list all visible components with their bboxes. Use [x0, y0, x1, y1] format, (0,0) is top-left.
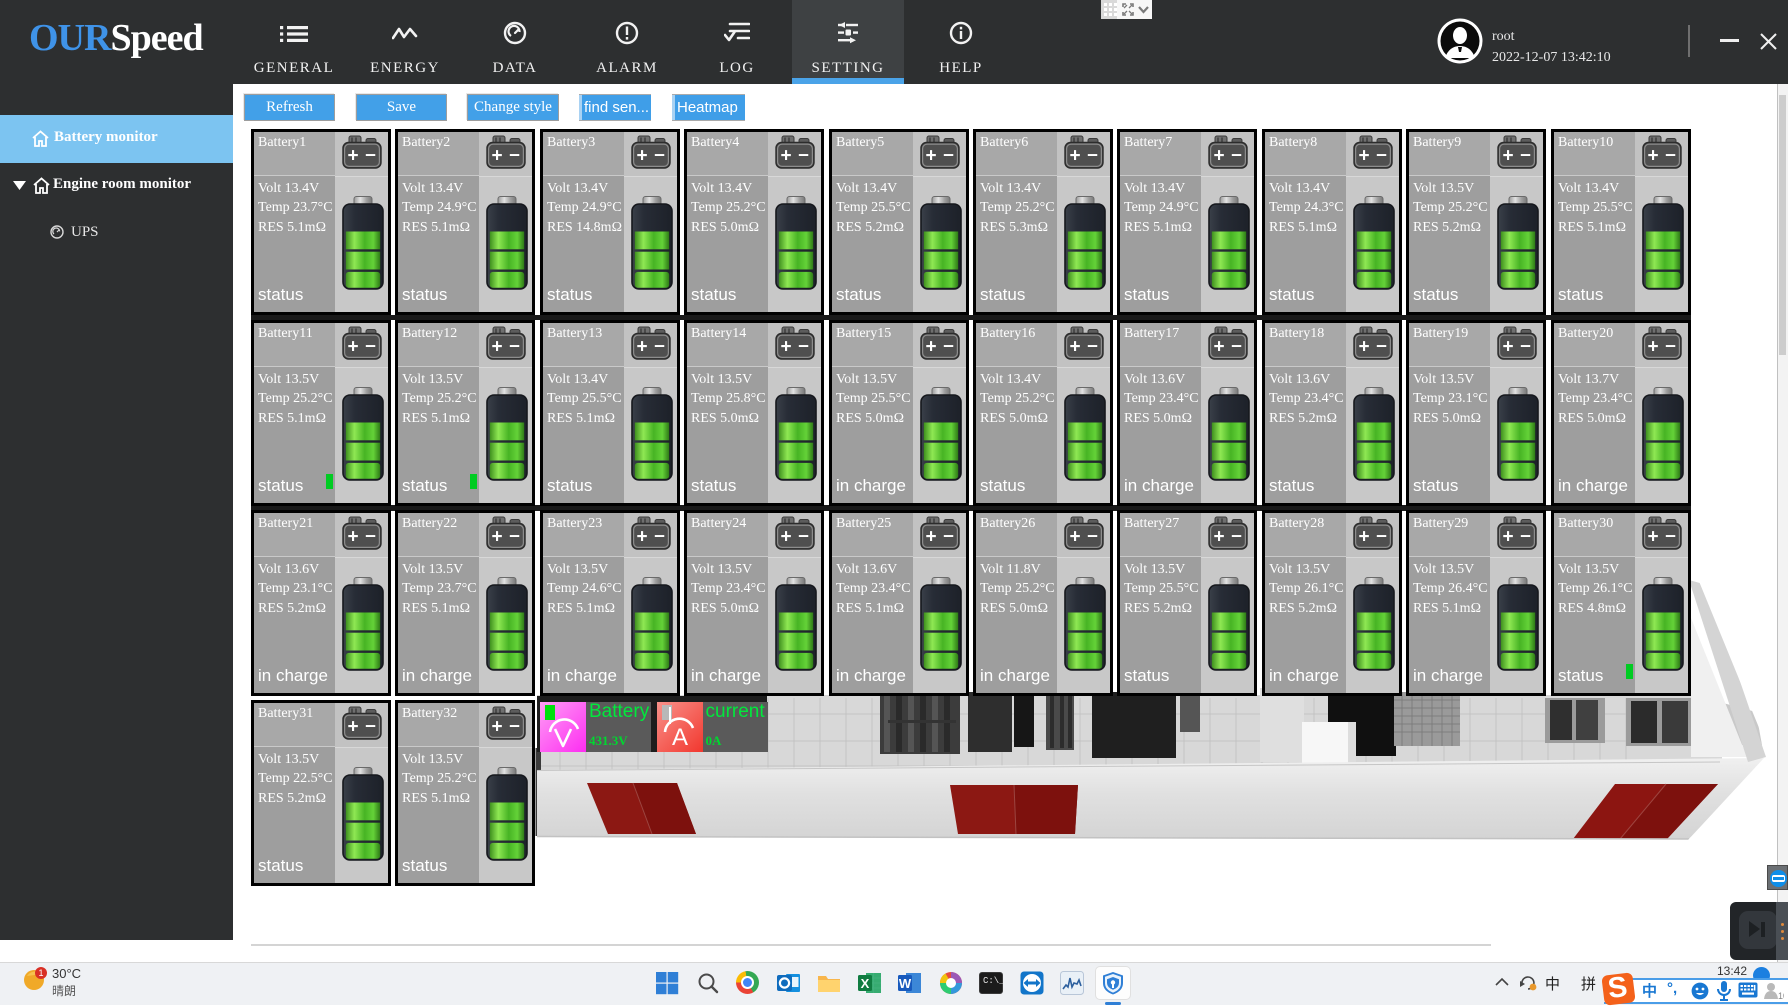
svg-text:+: + [925, 527, 936, 548]
svg-text:+: + [347, 717, 358, 738]
svg-text:–: – [1376, 145, 1387, 166]
svg-text:+: + [636, 527, 647, 548]
svg-text:W: W [899, 976, 912, 991]
svg-text:–: – [1520, 526, 1531, 547]
svg-text:+: + [925, 337, 936, 358]
svg-text:–: – [654, 526, 665, 547]
svg-text:–: – [1665, 145, 1676, 166]
svg-text:+: + [491, 717, 502, 738]
svg-text:+: + [1502, 146, 1513, 167]
svg-text:+: + [780, 527, 791, 548]
svg-text:+: + [1358, 146, 1369, 167]
svg-text:X: X [860, 976, 869, 991]
svg-text:–: – [509, 336, 520, 357]
svg-text:–: – [1665, 526, 1676, 547]
svg-text:–: – [798, 336, 809, 357]
svg-text:–: – [798, 526, 809, 547]
svg-text:+: + [1213, 337, 1224, 358]
svg-text:+: + [347, 337, 358, 358]
svg-text:10: 10 [1778, 991, 1784, 1001]
svg-text:–: – [365, 145, 376, 166]
svg-text:+: + [1213, 527, 1224, 548]
svg-text:–: – [654, 336, 665, 357]
svg-text:+: + [491, 337, 502, 358]
svg-text:–: – [509, 145, 520, 166]
svg-text:–: – [509, 716, 520, 737]
svg-text:–: – [654, 145, 665, 166]
svg-text:–: – [1520, 336, 1531, 357]
svg-text:1: 1 [38, 968, 43, 978]
svg-text:A: A [671, 724, 687, 751]
svg-text:–: – [943, 336, 954, 357]
svg-text:+: + [636, 146, 647, 167]
svg-text:+: + [1647, 337, 1658, 358]
svg-text:–: – [1231, 526, 1242, 547]
svg-text:–: – [365, 336, 376, 357]
svg-text:+: + [780, 337, 791, 358]
svg-text:+: + [1502, 337, 1513, 358]
svg-text:–: – [1087, 336, 1098, 357]
svg-text:–: – [1665, 336, 1676, 357]
svg-text:–: – [1376, 336, 1387, 357]
svg-text:–: – [1520, 145, 1531, 166]
svg-text:–: – [1087, 145, 1098, 166]
svg-text:–: – [509, 526, 520, 547]
svg-text:+: + [1358, 527, 1369, 548]
svg-text:C:\_: C:\_ [983, 976, 1003, 986]
svg-text:+: + [1358, 337, 1369, 358]
svg-text:–: – [1231, 145, 1242, 166]
svg-text:+: + [491, 527, 502, 548]
svg-text:+: + [1502, 527, 1513, 548]
svg-text:+: + [1069, 527, 1080, 548]
svg-text:–: – [1231, 336, 1242, 357]
svg-text:–: – [365, 526, 376, 547]
svg-text:+: + [1069, 337, 1080, 358]
svg-text:+: + [347, 146, 358, 167]
svg-text:+: + [1213, 146, 1224, 167]
svg-text:+: + [491, 146, 502, 167]
svg-text:–: – [798, 145, 809, 166]
svg-text:+: + [780, 146, 791, 167]
svg-text:–: – [1376, 526, 1387, 547]
svg-text:+: + [1069, 146, 1080, 167]
svg-text:+: + [925, 146, 936, 167]
svg-text:+: + [1647, 527, 1658, 548]
svg-text:–: – [943, 526, 954, 547]
svg-text:–: – [943, 145, 954, 166]
svg-text:+: + [636, 337, 647, 358]
svg-text:–: – [365, 716, 376, 737]
svg-text:+: + [347, 527, 358, 548]
svg-text:+: + [1647, 146, 1658, 167]
svg-text:–: – [1087, 526, 1098, 547]
